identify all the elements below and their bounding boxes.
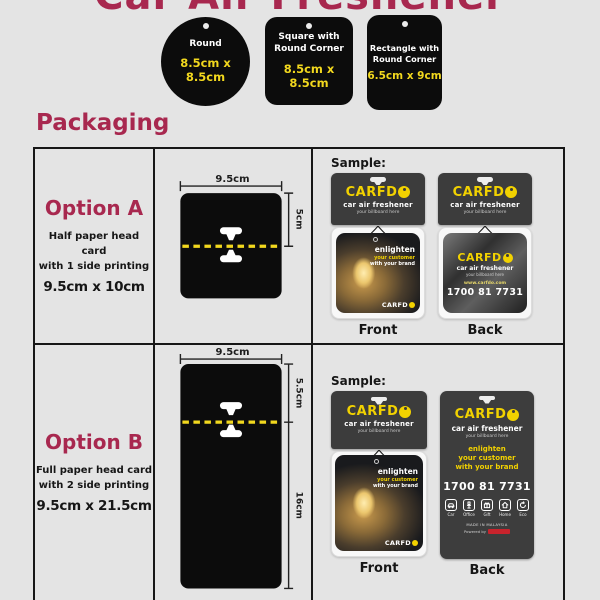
- hang-slot-icon: [370, 177, 386, 182]
- magnet-logo-badge: [488, 529, 510, 534]
- usage-gift: Gift: [480, 499, 495, 517]
- string-ring-icon: [374, 459, 379, 464]
- powered-by: Powered by: [464, 529, 510, 534]
- brand-logo: CARFD: [457, 251, 512, 264]
- brand-logo-small: CARFD: [382, 301, 415, 309]
- packaging-table: Option A Half paper head cardwith 1 side…: [33, 147, 565, 600]
- plastic-pouch: enlighten your customer with your brand …: [331, 451, 427, 557]
- packaging-heading: Packaging: [36, 110, 169, 136]
- option-a-front-sample: CARFD car air freshener your billboard h…: [331, 173, 425, 338]
- usage-office: Office: [462, 499, 477, 517]
- logo-o-icon: [507, 409, 519, 421]
- option-a-diagram: 9.5cm 5cm: [155, 149, 311, 343]
- option-description: Full paper head cardwith 2 side printing: [36, 463, 152, 493]
- full-back-card: CARFD car air freshener your billboard h…: [440, 391, 534, 559]
- string-ring-icon: [373, 237, 378, 242]
- flyer-canvas: Car Air Freshener Round 8.5cm x 8.5cm Sq…: [0, 0, 600, 600]
- slogan: enlighten your customer with your brand: [373, 467, 418, 489]
- brand-logo: CARFD: [453, 185, 518, 200]
- logo-o-icon: [399, 406, 411, 418]
- shape-name: Square withRound Corner: [274, 32, 344, 55]
- shape-size: 8.5cm x 8.5cm: [265, 62, 353, 90]
- usage-car: Car: [444, 499, 459, 517]
- slogan: enlighten your customer with your brand: [455, 445, 518, 472]
- option-size: 9.5cm x 10cm: [43, 279, 144, 295]
- brand-tagline: car air freshener: [343, 201, 413, 209]
- usage-eco: Eco: [516, 499, 531, 517]
- back-caption: Back: [438, 323, 532, 338]
- headcard: CARFD car air freshener your billboard h…: [331, 391, 427, 449]
- brand-logo: CARFD: [455, 407, 520, 422]
- logo-o-icon: [398, 186, 410, 198]
- car-icon: [445, 499, 457, 511]
- sample-label: Sample:: [331, 374, 563, 388]
- usage-home: Home: [498, 499, 513, 517]
- shape-size: 6.5cm x 9cm: [367, 70, 441, 82]
- bottom-height-dimension-label: 16cm: [294, 491, 304, 518]
- front-caption: Front: [331, 323, 425, 338]
- height-dimension-label: 5cm: [294, 209, 304, 230]
- freshener-back-card: CARFD car air freshener your billboard h…: [443, 233, 527, 313]
- sample-label: Sample:: [331, 156, 563, 170]
- height-dimension-line: [284, 193, 293, 246]
- hang-hole-icon: [203, 23, 209, 29]
- brand-logo-small: CARFD: [385, 539, 418, 547]
- option-a-back-sample: CARFD car air freshener your billboard h…: [438, 173, 532, 338]
- option-b-diagram: 9.5cm 5.5cm 16cm: [155, 345, 311, 600]
- euro-slot-hole: [220, 227, 242, 234]
- option-a-sample-cell: Sample: CARFD car air freshener your bil…: [313, 149, 563, 343]
- freshener-front-photo: enlighten your customer with your brand …: [335, 455, 423, 551]
- brand-subtagline: your billboard here: [357, 210, 400, 215]
- shape-round-tag: Round 8.5cm x 8.5cm: [161, 17, 250, 106]
- home-icon: [499, 499, 511, 511]
- euro-slot-hole: [220, 255, 242, 262]
- plastic-pouch: enlighten your customer with your brand …: [331, 227, 425, 319]
- option-name: Option B: [45, 430, 143, 454]
- option-a-info-cell: Option A Half paper head cardwith 1 side…: [35, 149, 155, 343]
- option-b-front-sample: CARFD car air freshener your billboard h…: [331, 391, 427, 576]
- shape-name: Rectangle withRound Corner: [370, 43, 439, 64]
- headcard: CARFD car air freshener your billboard h…: [331, 173, 425, 225]
- option-a-diagram-cell: 9.5cm 5cm: [155, 149, 313, 343]
- top-height-dimension-line: [284, 364, 293, 422]
- option-b-info-cell: Option B Full paper head cardwith 2 side…: [35, 345, 155, 600]
- website: www.carfdo.com: [464, 281, 506, 286]
- logo-o-icon: [412, 540, 418, 546]
- office-chair-icon: [463, 499, 475, 511]
- logo-o-icon: [503, 253, 513, 263]
- option-name: Option A: [45, 196, 143, 220]
- plastic-pouch: CARFD car air freshener your billboard h…: [438, 227, 532, 319]
- brand-tagline: car air freshener: [450, 201, 520, 209]
- logo-o-icon: [505, 186, 517, 198]
- euro-slot-hole: [220, 402, 242, 409]
- headcard: CARFD car air freshener your billboard h…: [438, 173, 532, 225]
- option-b-sample-cell: Sample: CARFD car air freshener your bil…: [313, 345, 563, 600]
- made-in-label: MADE IN MALAYSIA: [466, 522, 507, 527]
- hang-slot-icon: [477, 177, 493, 182]
- freshener-front-photo: enlighten your customer with your brand …: [336, 233, 420, 313]
- headcard-outline: [180, 364, 281, 588]
- brand-tagline: car air freshener: [457, 265, 514, 272]
- back-caption: Back: [440, 563, 534, 578]
- shape-size: 8.5cm x 8.5cm: [161, 56, 250, 84]
- gift-icon: [481, 499, 493, 511]
- option-b-diagram-cell: 9.5cm 5.5cm 16cm: [155, 345, 313, 600]
- option-size: 9.5cm x 21.5cm: [36, 498, 151, 514]
- shape-rectangle-tag: Rectangle withRound Corner 6.5cm x 9cm: [367, 15, 442, 110]
- hang-hole-icon: [306, 23, 312, 29]
- option-a-row: Option A Half paper head cardwith 1 side…: [35, 149, 563, 345]
- front-caption: Front: [331, 561, 427, 576]
- top-height-dimension-label: 5.5cm: [294, 377, 304, 408]
- logo-o-icon: [409, 302, 415, 308]
- bottom-height-dimension-line: [284, 422, 293, 588]
- brand-tagline: car air freshener: [452, 424, 523, 433]
- brand-subtagline: your billboard here: [466, 434, 509, 439]
- slogan: enlighten your customer with your brand: [370, 245, 415, 267]
- shape-square-tag: Square withRound Corner 8.5cm x 8.5cm: [265, 17, 353, 105]
- option-b-back-sample: CARFD car air freshener your billboard h…: [440, 391, 534, 578]
- euro-slot-hole: [220, 430, 242, 437]
- hang-slot-icon: [479, 396, 495, 401]
- brand-subtagline: your billboard here: [358, 429, 401, 434]
- phone-number: 1700 81 7731: [443, 480, 531, 493]
- brand-subtagline: your billboard here: [466, 272, 504, 277]
- recycle-icon: [517, 499, 529, 511]
- brand-logo: CARFD: [347, 404, 412, 419]
- width-dimension-label: 9.5cm: [215, 174, 249, 185]
- brand-subtagline: your billboard here: [464, 210, 507, 215]
- brand-tagline: car air freshener: [344, 420, 414, 428]
- width-dimension-label: 9.5cm: [215, 347, 249, 358]
- usage-icons: Car Office Gift: [444, 499, 531, 517]
- hang-hole-icon: [402, 21, 408, 27]
- hang-slot-icon: [371, 397, 387, 402]
- shape-name: Round: [189, 39, 221, 51]
- brand-logo: CARFD: [346, 185, 411, 200]
- option-b-row: Option B Full paper head cardwith 2 side…: [35, 345, 563, 600]
- phone-number: 1700 81 7731: [447, 287, 523, 298]
- option-description: Half paper head cardwith 1 side printing: [35, 229, 153, 274]
